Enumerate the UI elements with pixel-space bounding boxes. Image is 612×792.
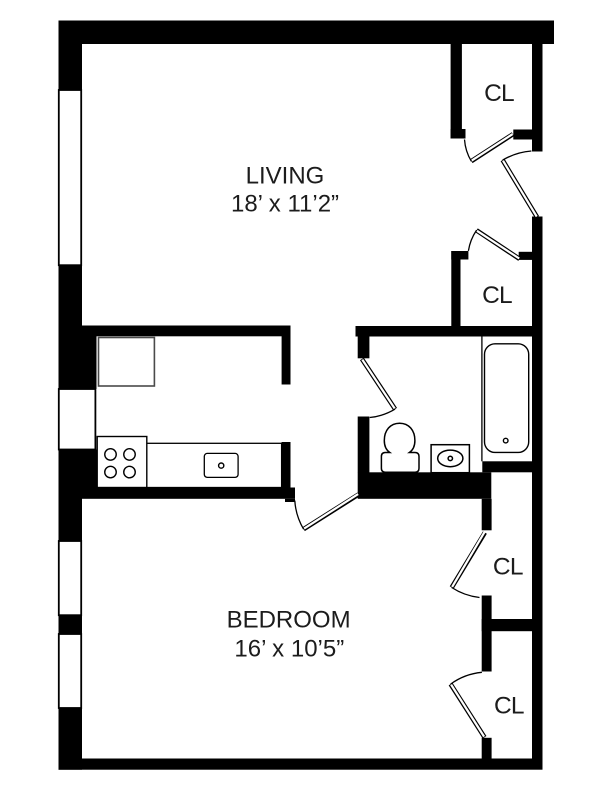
svg-text:CL: CL (493, 554, 523, 581)
svg-text:LIVING: LIVING (246, 163, 325, 190)
svg-text:BEDROOM: BEDROOM (227, 607, 351, 634)
svg-text:CL: CL (482, 282, 512, 309)
svg-text:16’ x 10’5”: 16’ x 10’5” (234, 635, 344, 662)
svg-text:CL: CL (484, 80, 514, 107)
svg-text:18’ x 11’2”: 18’ x 11’2” (231, 191, 339, 218)
svg-text:CL: CL (494, 692, 524, 719)
